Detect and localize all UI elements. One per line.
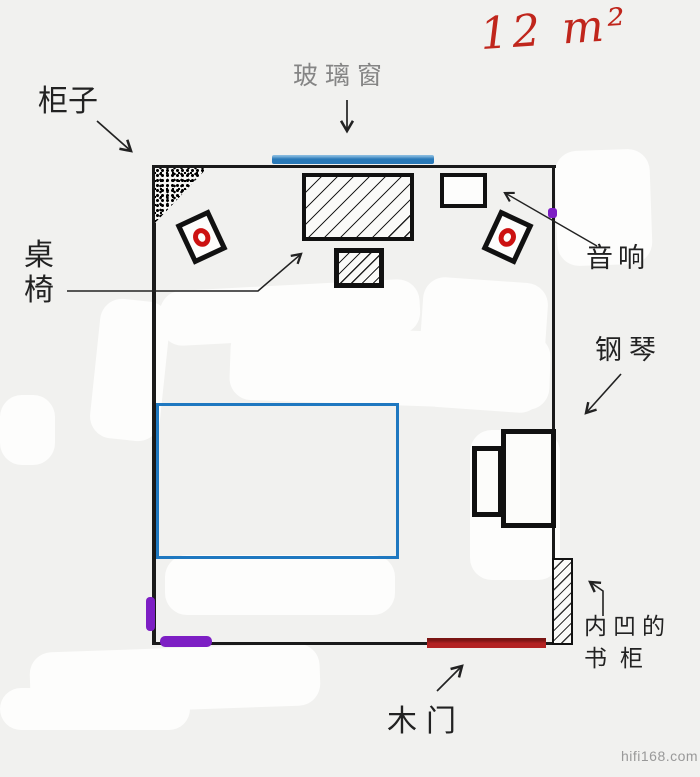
speaker-driver-icon <box>496 225 519 249</box>
floor-plan-canvas: 柜子 玻璃窗 12 m² 桌 椅 音响 钢琴 内凹的 书柜 木门 hifi168… <box>0 0 700 777</box>
whiteout-patch <box>0 395 55 465</box>
wooden-door-label: 木门 <box>387 696 465 740</box>
small-table-hatched-rect <box>334 248 384 288</box>
piano-arrow <box>586 374 621 413</box>
recessed-bookcase-line2: 书柜 <box>584 642 671 674</box>
equipment-square <box>440 173 487 208</box>
room-area-label: 12 m² <box>478 0 631 60</box>
recessed-bookcase-strip <box>552 558 573 645</box>
whiteout-patch <box>0 688 190 730</box>
recessed-bookcase-label: 内凹的 书柜 <box>584 610 671 674</box>
speaker-left <box>175 209 227 265</box>
piano-bench <box>472 446 503 517</box>
whiteout-patch <box>165 555 395 615</box>
recessed-bookcase-line1: 内凹的 <box>584 610 671 642</box>
speaker-driver-icon <box>190 225 213 249</box>
wooden-door-marker <box>427 638 546 648</box>
table-chairs-char2: 椅 <box>24 273 54 308</box>
purple-scribble <box>160 636 212 647</box>
glass-window-label: 玻璃窗 <box>293 56 389 92</box>
glass-window-marker <box>272 155 434 164</box>
audio-label: 音响 <box>586 236 650 275</box>
table-chairs-label: 桌 椅 <box>24 238 54 308</box>
cabinet-arrow <box>97 121 131 151</box>
purple-scribble <box>548 208 557 218</box>
door-arrow <box>437 666 462 691</box>
room-wall-top <box>152 165 556 168</box>
speaker-right <box>481 209 533 265</box>
site-watermark: hifi168.com <box>621 748 698 764</box>
table-hatched-rect <box>302 173 414 241</box>
whiteout-patch <box>416 276 550 414</box>
purple-scribble <box>146 597 155 631</box>
table-chairs-char1: 桌 <box>24 238 54 273</box>
piano-body <box>501 429 556 528</box>
bed-outline-rect <box>156 403 399 559</box>
cabinet-label: 柜子 <box>38 76 98 120</box>
piano-label: 钢琴 <box>595 328 663 367</box>
